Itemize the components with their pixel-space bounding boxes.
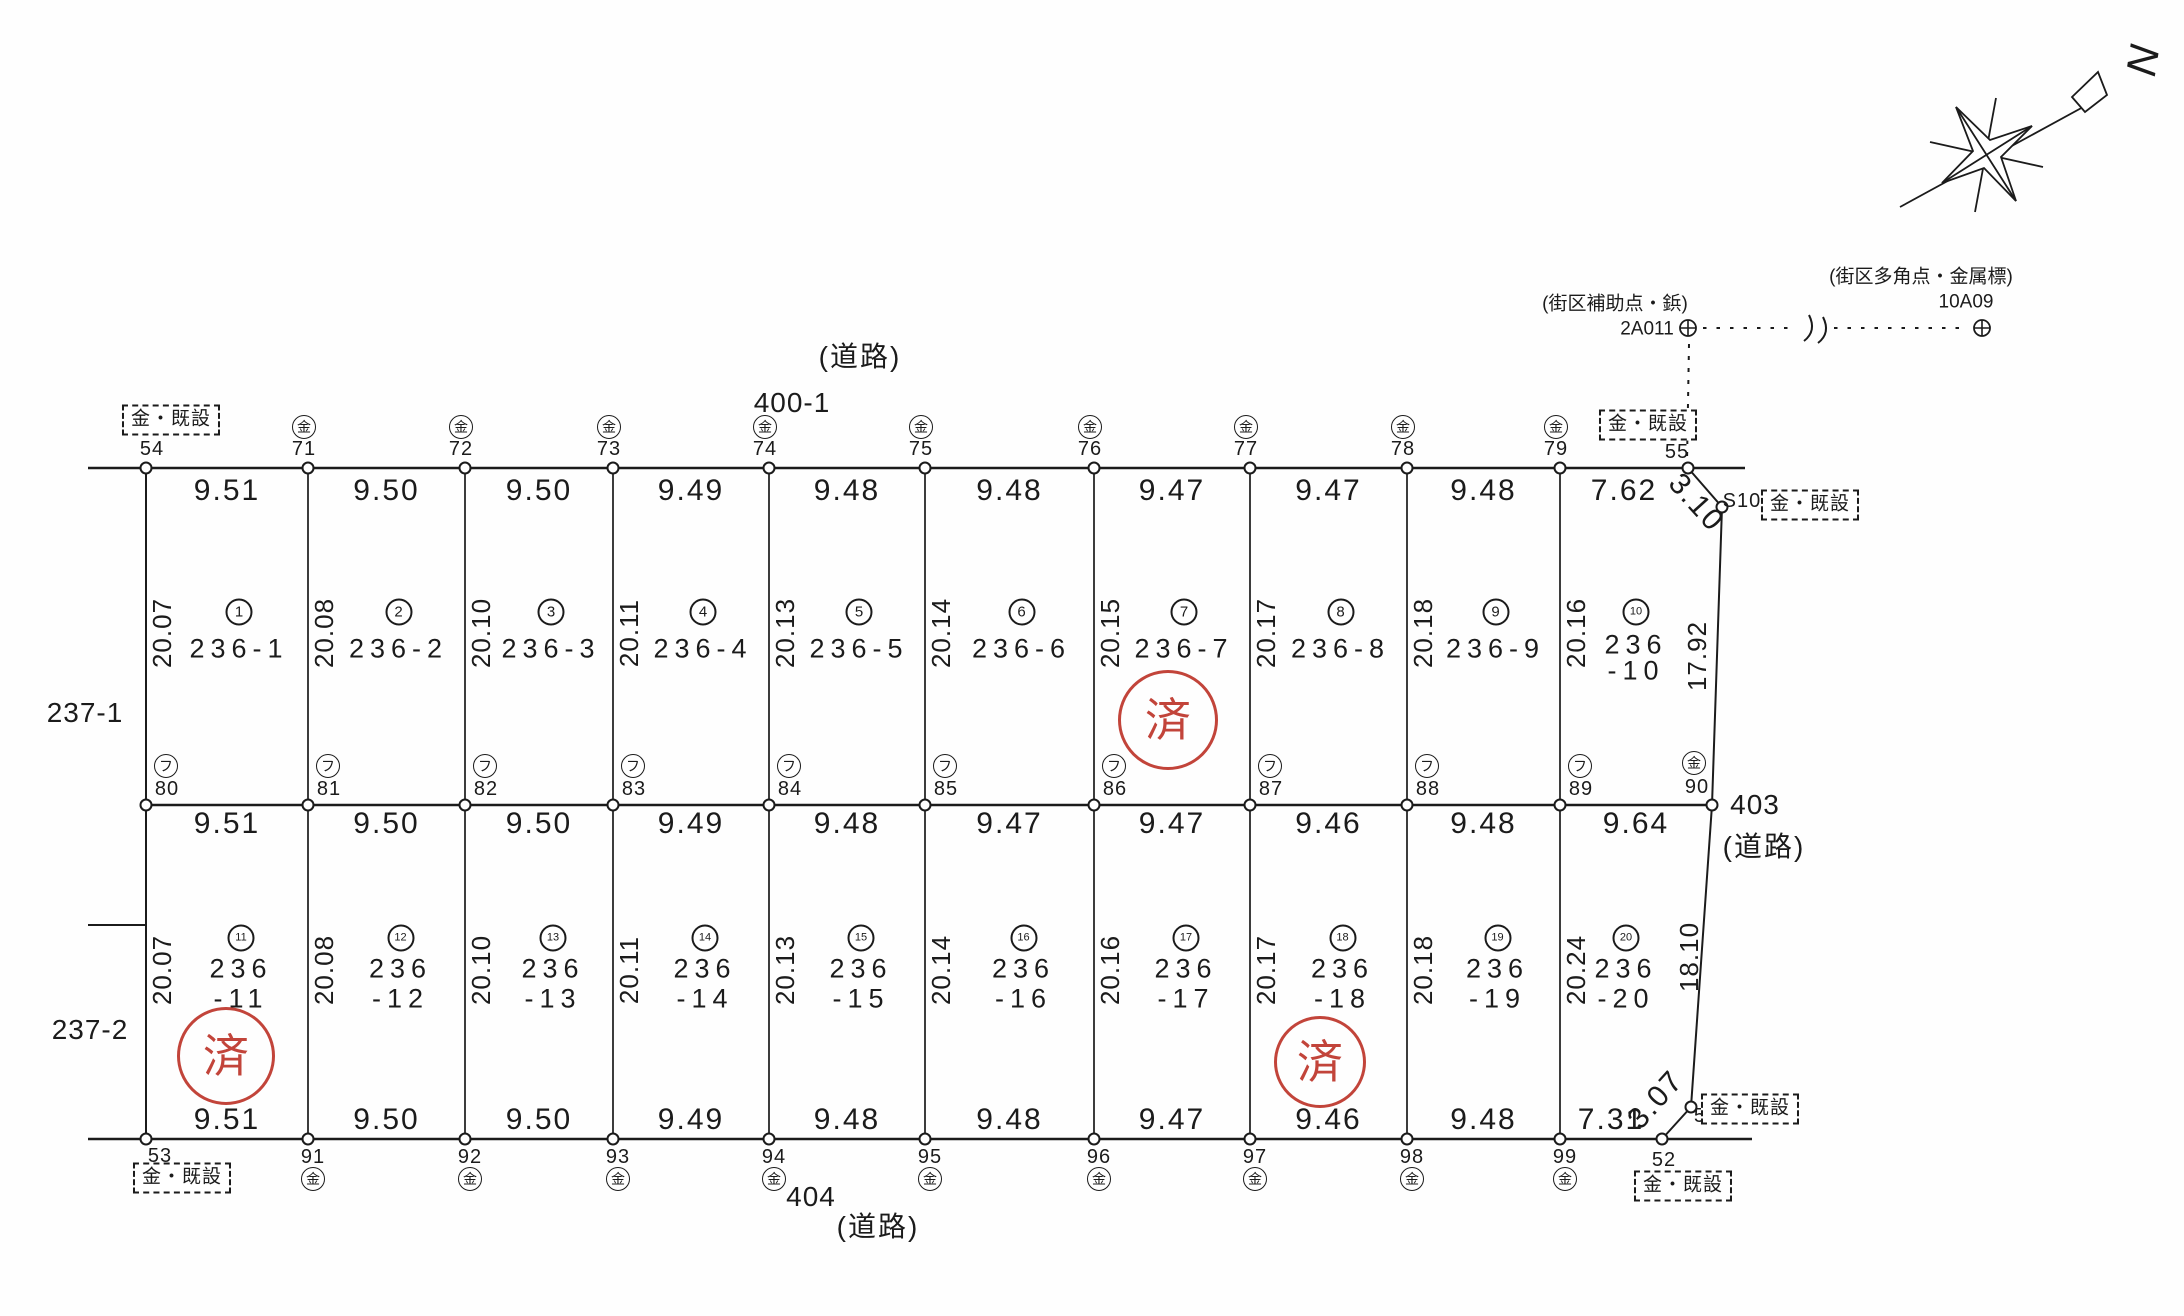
point-num-bottom: 94 [762,1147,786,1167]
parcel-label-line1: 236 [209,956,272,983]
dim-bottom-3: 9.50 [506,1105,572,1135]
plastic-marker-icon: フ [621,754,645,778]
parcel-label-line2: -13 [524,986,581,1013]
point-num-middle: 86 [1103,779,1127,799]
point-num-middle: 81 [317,779,341,799]
dim-top-8: 9.47 [1295,476,1361,506]
metal-marker-icon: 金 [1087,1167,1111,1191]
metal-marker-icon: 金 [292,415,316,439]
parcel-side-dim: 20.10 [468,935,494,1005]
parcel-side-dim: 20.10 [468,598,494,668]
parcel-label-line1: 236 [1311,956,1374,983]
plastic-marker-icon: フ [1415,754,1439,778]
dim-top-9: 9.48 [1450,476,1516,506]
compass-rose [1900,72,2107,212]
dim-middle-8: 9.46 [1295,809,1361,839]
dim-middle-3: 9.50 [506,809,572,839]
parcel-side-dim: 20.14 [928,598,954,668]
poly-point-name: 10A09 [1939,293,1994,312]
point-num-top: 74 [753,439,777,459]
parcel-number-circle: 8 [1327,599,1354,626]
parcel-number-circle: 13 [540,925,567,952]
parcel-side-dim: 20.18 [1410,935,1436,1005]
dim-bottom-6: 9.48 [976,1105,1042,1135]
parcel-number-circle: 19 [1484,925,1511,952]
metal-marker-icon: 金 [449,415,473,439]
compass-north-label: N [2117,41,2168,79]
existing-metal-marker-box: 金・既設 [1701,1094,1799,1125]
point-num-top: 79 [1544,439,1568,459]
parcel-label-line1: 236 [673,956,736,983]
parcel-side-dim: 20.14 [928,935,954,1005]
plastic-marker-icon: フ [933,754,957,778]
parcel-side-dim: 20.16 [1563,598,1589,668]
point-num-bottom: 97 [1243,1147,1267,1167]
point-num-bottom: 92 [458,1147,482,1167]
dim-middle-9: 9.48 [1450,809,1516,839]
metal-marker-icon: 金 [1243,1167,1267,1191]
road-bottom-name: 404 [786,1183,836,1211]
parcel-side-dim: 20.08 [311,935,337,1005]
poly-point-type-label: (街区多角点・金属標) [1829,268,2013,287]
parcel-side-dim: 20.15 [1097,598,1123,668]
plastic-marker-icon: フ [1258,754,1282,778]
aux-point-name: 2A011 [1620,320,1674,339]
dim-bottom-5: 9.48 [814,1105,880,1135]
parcel-side-dim: 20.18 [1410,598,1436,668]
parcel-number-circle: 5 [846,599,873,626]
road-bottom-kind: (道路) [837,1213,920,1241]
parcel-label-line1: 236 [369,956,432,983]
parcel-number-circle: 14 [692,925,719,952]
metal-marker-icon: 金 [909,415,933,439]
plastic-marker-icon: フ [777,754,801,778]
parcel-label: 236-5 [809,636,908,663]
parcel-side-dim: 20.07 [149,935,175,1005]
dim-middle-2: 9.50 [353,809,419,839]
aux-point-type-label: (街区補助点・鋲) [1542,295,1688,314]
parcel-side-dim: 20.17 [1253,598,1279,668]
parcel-label: 236-1 [189,636,288,663]
point-num-top: 55 [1665,442,1689,462]
parcel-side-dim: 20.08 [311,598,337,668]
point-num-top: 75 [909,439,933,459]
dim-middle-10: 9.64 [1603,809,1669,839]
parcel-number-circle: 10 [1623,599,1650,626]
parcel-number-circle: 16 [1010,925,1037,952]
point-num-middle: 90 [1685,777,1709,797]
parcel-side-dim: 20.11 [616,599,642,667]
dim-top-1: 9.51 [194,476,260,506]
existing-metal-marker-box: 金・既設 [133,1163,231,1194]
existing-metal-marker-box: 金・既設 [1634,1171,1732,1202]
dim-top-6: 9.48 [976,476,1042,506]
existing-metal-marker-box: 金・既設 [1761,490,1859,521]
existing-metal-marker-box: 金・既設 [122,405,220,436]
point-num-bottom: 93 [606,1147,630,1167]
parcel-number-circle: 18 [1329,925,1356,952]
parcel-number-circle: 6 [1008,599,1035,626]
parcel-number-circle: 12 [387,925,414,952]
metal-marker-icon: 金 [1544,415,1568,439]
point-num-middle: 80 [155,779,179,799]
dim-middle-4: 9.49 [658,809,724,839]
metal-marker-icon: 金 [597,415,621,439]
point-num-bottom: 99 [1553,1147,1577,1167]
point-num-top: 78 [1391,439,1415,459]
cadastral-survey-map: N (道路) 400-1 403 (道路) 404 (道路) 237-1 237… [0,0,2184,1316]
point-num-top: 73 [597,439,621,459]
parcel-label-line2: -12 [372,986,429,1013]
dim-middle-1: 9.51 [194,809,260,839]
parcel-number-circle: 2 [385,599,412,626]
point-num-top: 71 [292,439,316,459]
parcel-number-circle: 20 [1613,925,1640,952]
dim-middle-5: 9.48 [814,809,880,839]
dim-top-7: 9.47 [1139,476,1205,506]
road-right-name: 403 [1730,791,1780,819]
parcel-side-dim: 20.24 [1563,935,1589,1005]
dim-bottom-2: 9.50 [353,1105,419,1135]
road-right-kind: (道路) [1723,833,1806,861]
point-num-bottom: 98 [1400,1147,1424,1167]
leader-break-mark-1 [1804,315,1812,341]
completed-stamp-text: 済 [1145,697,1191,743]
parcel-right-side-dim: 17.92 [1684,621,1710,691]
dim-top-2: 9.50 [353,476,419,506]
metal-marker-icon: 金 [1078,415,1102,439]
parcel-label-line1: 236 [992,956,1055,983]
dim-bottom-1: 9.51 [194,1105,260,1135]
compass-arrowhead [2072,72,2107,112]
dim-middle-7: 9.47 [1139,809,1205,839]
point-num-middle: 82 [474,779,498,799]
dim-bottom-4: 9.49 [658,1105,724,1135]
parcel-label-line1: 236 [1604,632,1667,659]
metal-marker-icon: 金 [1400,1167,1424,1191]
completed-stamp-text: 済 [203,1033,249,1079]
dim-bottom-9: 9.48 [1450,1105,1516,1135]
point-num-top: 72 [449,439,473,459]
metal-marker-icon: 金 [606,1167,630,1191]
road-top-kind: (道路) [819,343,902,371]
parcel-label-line1: 236 [1594,956,1657,983]
plastic-marker-icon: フ [1102,754,1126,778]
point-num-middle: 85 [934,779,958,799]
plastic-marker-icon: フ [154,754,178,778]
parcel-label-line1: 236 [1154,956,1217,983]
parcel-side-dim: 20.11 [616,936,642,1004]
metal-marker-icon: 金 [918,1167,942,1191]
point-num-middle: 87 [1259,779,1283,799]
completed-stamp: 済 [1118,670,1218,770]
completed-stamp-text: 済 [1297,1039,1343,1085]
parcel-label: 236-2 [349,636,448,663]
parcel-number-circle: 17 [1173,925,1200,952]
parcel-number-circle: 9 [1482,599,1509,626]
point-num-bottom: 52 [1652,1150,1676,1170]
lot-division-lines [308,468,1560,1139]
metal-marker-icon: 金 [458,1167,482,1191]
point-num-bottom: 95 [918,1147,942,1167]
metal-marker-icon: 金 [1234,415,1258,439]
ref-mark-10A09 [1974,320,1990,336]
dim-top-3: 9.50 [506,476,572,506]
survey-point-dots [141,463,1728,1145]
parcel-number-circle: 4 [690,599,717,626]
dim-top-10: 7.62 [1591,476,1657,506]
adjacent-parcel-237-2: 237-2 [52,1016,129,1044]
parcel-label-line2: -10 [1607,658,1664,685]
metal-marker-icon: 金 [1553,1167,1577,1191]
existing-metal-marker-box: 金・既設 [1599,410,1697,441]
point-num-bottom: 91 [301,1147,325,1167]
parcel-label: 236-3 [501,636,600,663]
parcel-label-line2: -15 [832,986,889,1013]
parcel-number-circle: 7 [1171,599,1198,626]
point-num-top: 54 [140,439,164,459]
completed-stamp: 済 [177,1007,275,1105]
plastic-marker-icon: フ [316,754,340,778]
parcel-number-circle: 11 [228,925,255,952]
compass-star-cross [1942,107,2032,201]
dim-middle-6: 9.47 [976,809,1042,839]
ref-mark-2A011 [1680,320,1696,336]
plastic-marker-icon: フ [1568,754,1592,778]
completed-stamp: 済 [1274,1016,1366,1108]
parcel-label-line2: -19 [1469,986,1526,1013]
parcel-label: 236-4 [653,636,752,663]
point-num-bottom: 96 [1087,1147,1111,1167]
metal-marker-icon: 金 [753,415,777,439]
metal-marker-icon: 金 [301,1167,325,1191]
road-top-name: 400-1 [754,389,831,417]
dim-bottom-7: 9.47 [1139,1105,1205,1135]
parcel-label-line1: 236 [829,956,892,983]
parcel-side-dim: 20.16 [1097,935,1123,1005]
parcel-label-line2: -18 [1314,986,1371,1013]
metal-marker-icon: 金 [762,1167,786,1191]
parcel-number-circle: 1 [226,599,253,626]
point-num-top: 77 [1234,439,1258,459]
dim-bottom-8: 9.46 [1295,1105,1361,1135]
parcel-label-line2: -14 [676,986,733,1013]
parcel-label-line1: 236 [521,956,584,983]
parcel-label: 236-8 [1291,636,1390,663]
point-num-middle: 89 [1569,779,1593,799]
parcel-label: 236-6 [972,636,1071,663]
adjacent-parcel-237-1: 237-1 [47,699,124,727]
parcel-side-dim: 20.17 [1253,935,1279,1005]
parcel-number-circle: 3 [538,599,565,626]
dim-top-4: 9.49 [658,476,724,506]
point-num-middle: 83 [622,779,646,799]
parcel-number-circle: 15 [848,925,875,952]
parcel-side-dim: 20.07 [149,598,175,668]
metal-marker-icon: 金 [1391,415,1415,439]
dim-top-5: 9.48 [814,476,880,506]
parcel-side-dim: 20.13 [772,935,798,1005]
dim-bottom-10: 7.31 [1578,1105,1644,1135]
parcel-side-dim: 20.13 [772,598,798,668]
parcel-label: 236-7 [1134,636,1233,663]
point-num-top: 76 [1078,439,1102,459]
parcel-label-line2: -16 [995,986,1052,1013]
metal-marker-icon: 金 [1682,751,1706,775]
plastic-marker-icon: フ [473,754,497,778]
parcel-label-line1: 236 [1466,956,1529,983]
point-num-middle: 88 [1416,779,1440,799]
parcel-right-side-dim: 18.10 [1676,922,1702,992]
parcel-label: 236-9 [1446,636,1545,663]
leader-break-mark-2 [1818,317,1826,343]
parcel-label-line2: -20 [1597,986,1654,1013]
parcel-label-line2: -17 [1157,986,1214,1013]
point-num-middle: 84 [778,779,802,799]
